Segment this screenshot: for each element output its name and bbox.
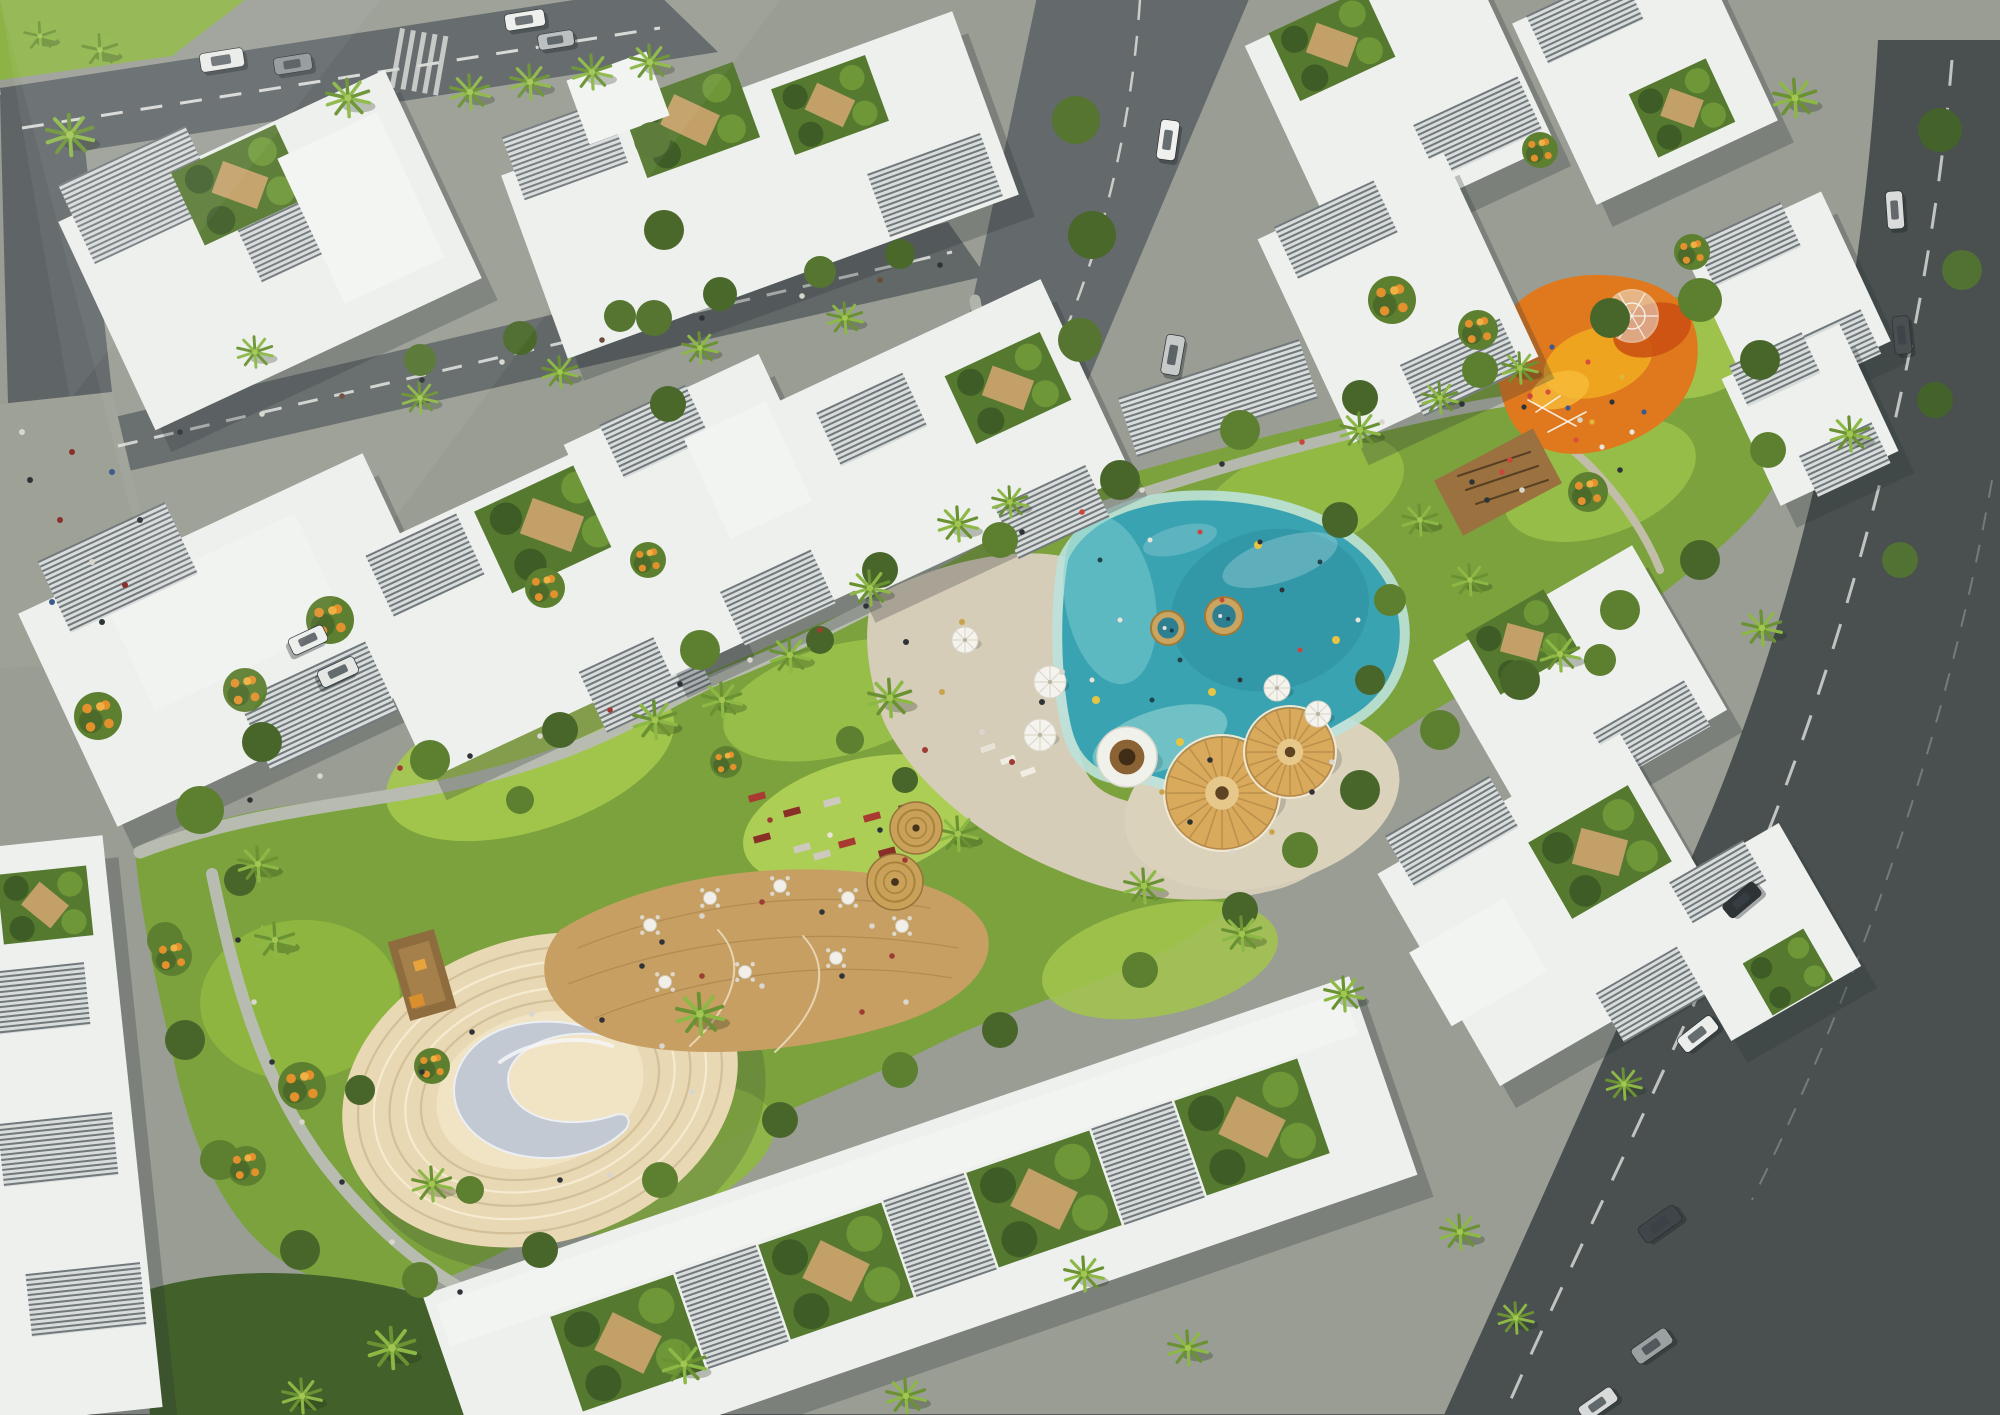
roof-garden xyxy=(0,865,93,944)
slat-pergola xyxy=(0,1113,118,1187)
aerial-site-plan xyxy=(0,0,2000,1415)
slat-pergola xyxy=(26,1263,147,1337)
slat-pergola xyxy=(0,963,90,1037)
aerial-render xyxy=(0,0,2000,1415)
